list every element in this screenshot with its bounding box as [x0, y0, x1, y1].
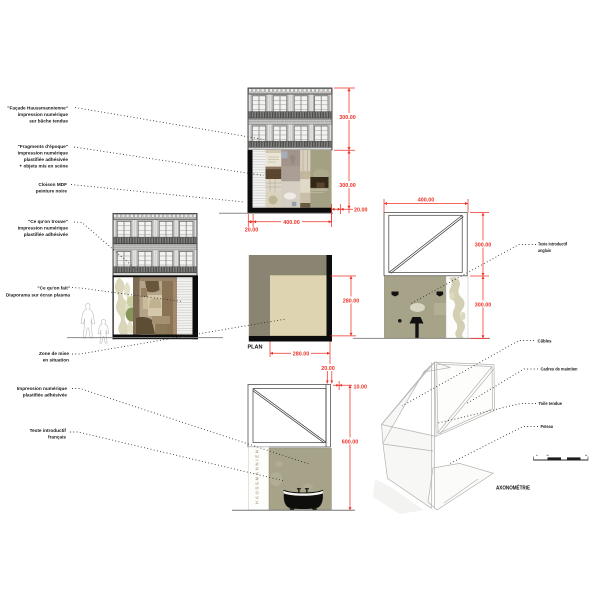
svg-text:impression numérique: impression numérique [18, 112, 69, 117]
svg-text:300.00: 300.00 [475, 243, 492, 249]
svg-text:peinture noire: peinture noire [36, 189, 68, 194]
svg-text:sur bâche tendue: sur bâche tendue [29, 119, 68, 124]
svg-text:300.00: 300.00 [339, 115, 356, 121]
svg-text:300.00: 300.00 [339, 183, 356, 189]
svg-text:plastifiée adhésivée: plastifiée adhésivée [23, 393, 68, 398]
svg-text:10.00: 10.00 [354, 384, 368, 390]
svg-text:400.00: 400.00 [283, 220, 300, 226]
svg-text:Cloison MDF: Cloison MDF [38, 182, 67, 187]
svg-text:Diaporama sur écran plasma: Diaporama sur écran plasma [6, 293, 70, 298]
svg-text:20.00: 20.00 [245, 228, 259, 234]
svg-text:300.00: 300.00 [475, 303, 492, 309]
svg-text:Texte introductif: Texte introductif [538, 242, 567, 247]
svg-text:AXONOMÉTRIE: AXONOMÉTRIE [496, 484, 530, 492]
svg-text:600.00: 600.00 [342, 440, 359, 446]
svg-text:français: français [48, 435, 66, 440]
svg-text:Toile tendue: Toile tendue [539, 401, 563, 406]
svg-text:PLAN: PLAN [248, 345, 263, 351]
svg-text:impression numérique: impression numérique [18, 226, 69, 231]
svg-text:"Ce qu'on trouve": "Ce qu'on trouve" [28, 219, 68, 224]
svg-text:"Façade Haussmannienne": "Façade Haussmannienne" [7, 106, 68, 111]
svg-text:anglais: anglais [538, 248, 551, 253]
svg-text:20.00: 20.00 [321, 366, 335, 372]
svg-text:plastifiée adhésivée: plastifiée adhésivée [24, 232, 69, 237]
svg-text:280.00: 280.00 [343, 299, 360, 305]
svg-text:Zone de mise: Zone de mise [39, 351, 69, 356]
svg-text:+ objets mis en scène: + objets mis en scène [19, 164, 68, 169]
svg-text:"Ce qu'on fait": "Ce qu'on fait" [37, 286, 70, 291]
svg-text:Texte introductif: Texte introductif [30, 428, 67, 433]
svg-text:"Fragments d'époque": "Fragments d'époque" [18, 144, 68, 149]
svg-text:impression numérique: impression numérique [18, 151, 69, 156]
svg-text:en situation: en situation [43, 358, 69, 363]
svg-text:Cadres de maintien: Cadres de maintien [541, 367, 578, 372]
svg-text:Impression numérique: Impression numérique [17, 386, 68, 391]
svg-text:20.00: 20.00 [354, 208, 368, 214]
svg-text:Poteau: Poteau [541, 424, 554, 429]
svg-text:plastifiée adhésivée: plastifiée adhésivée [24, 157, 69, 162]
svg-text:400.00: 400.00 [418, 198, 435, 204]
svg-text:280.00: 280.00 [293, 352, 310, 358]
svg-text:Câbles: Câbles [538, 339, 552, 344]
